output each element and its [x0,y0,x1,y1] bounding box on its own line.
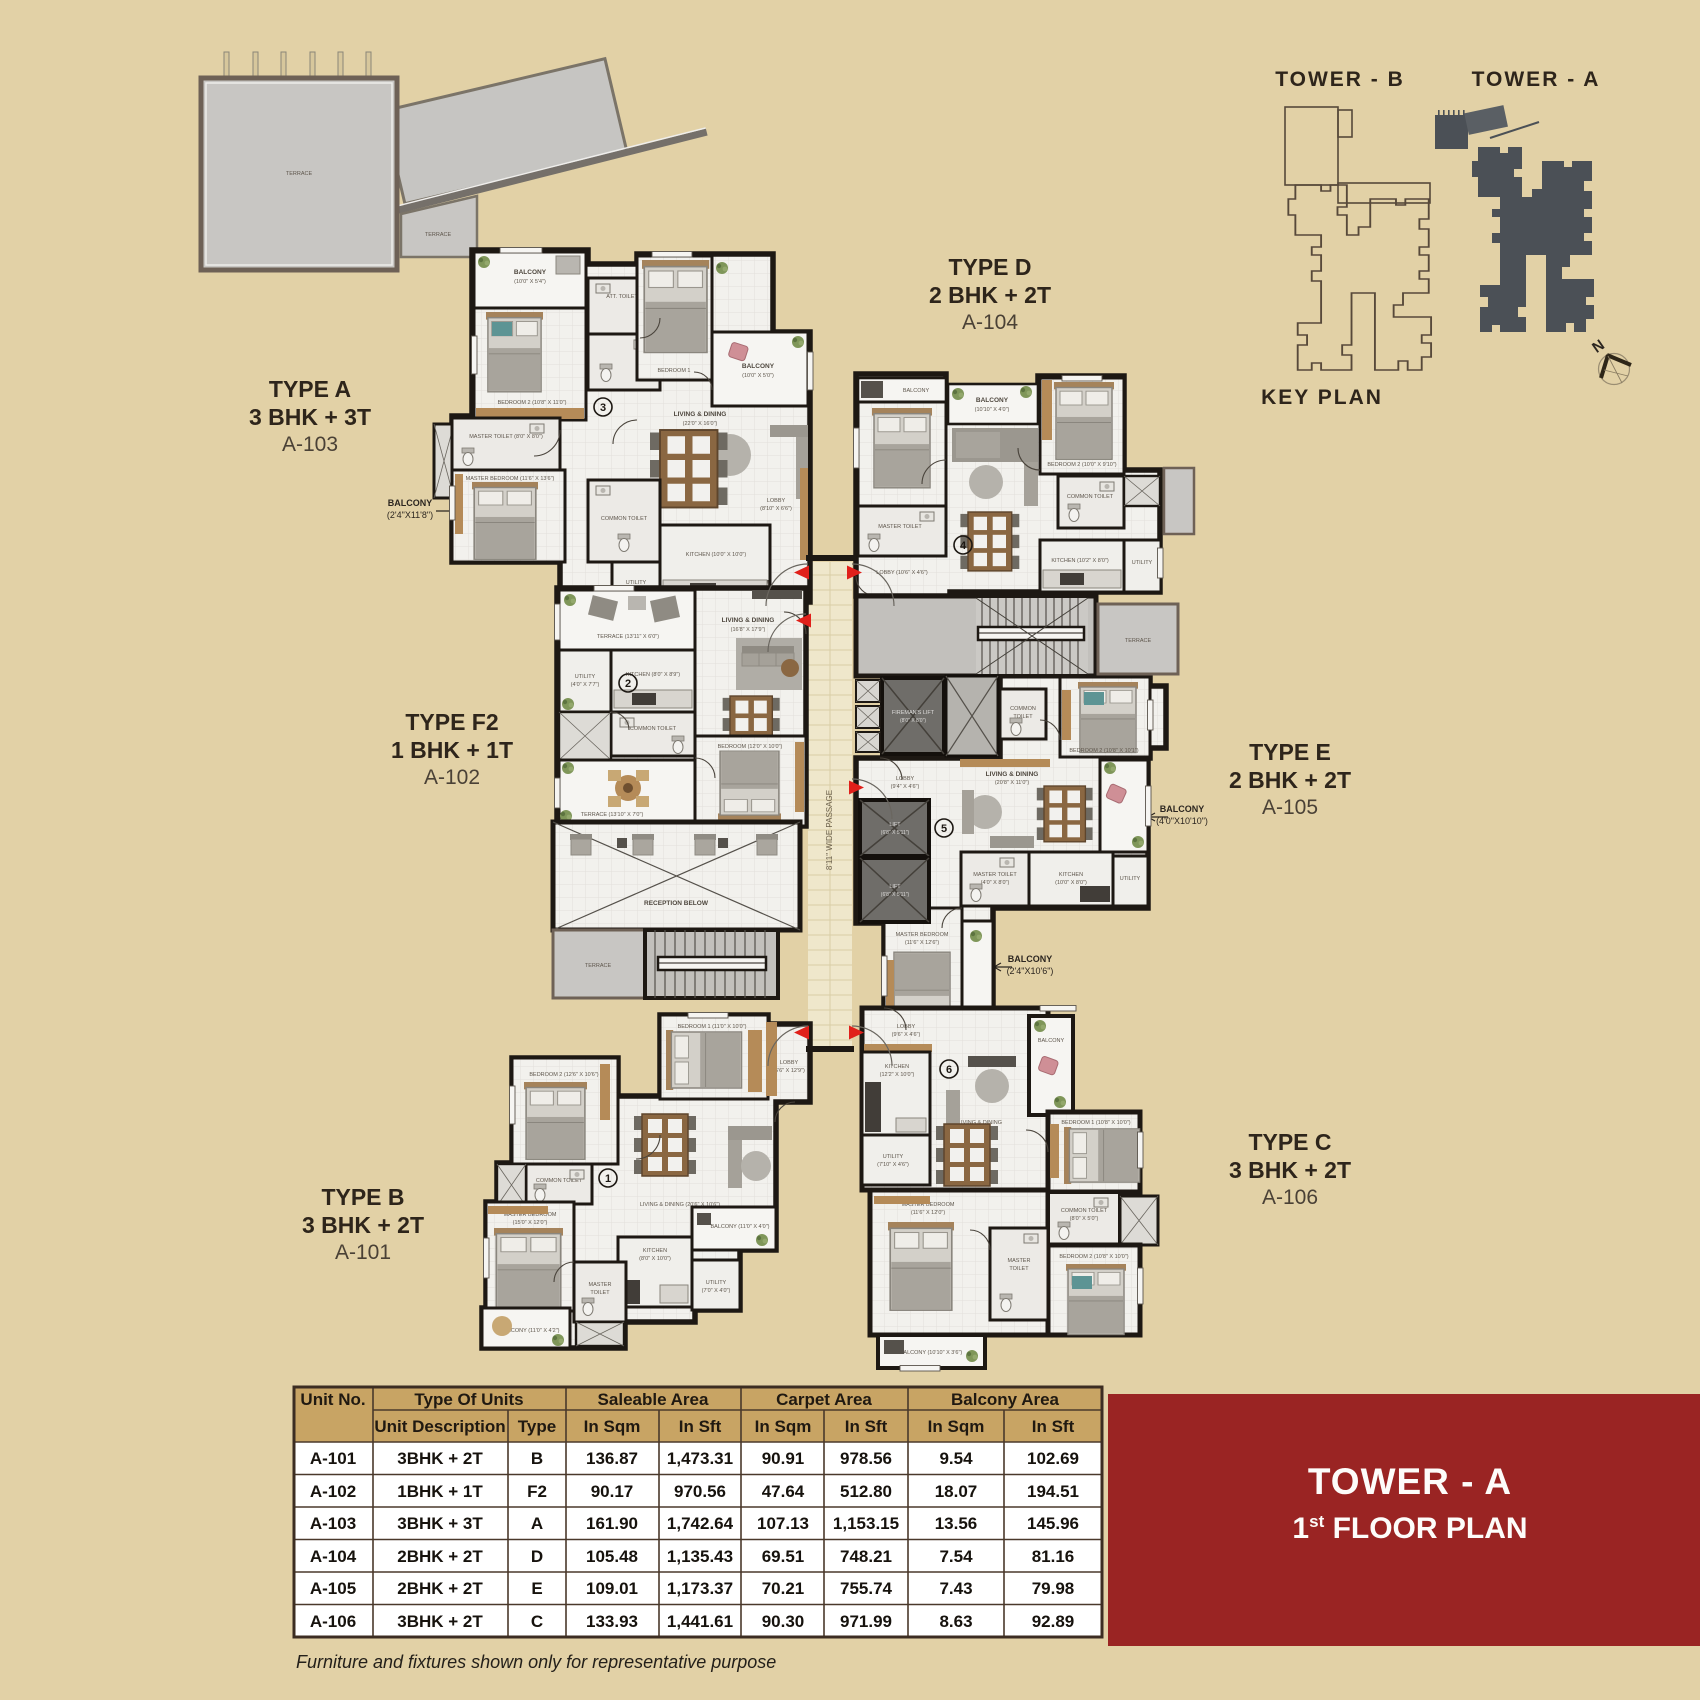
svg-text:COMMON: COMMON [1010,706,1036,712]
svg-text:TOILET: TOILET [590,1290,610,1296]
svg-text:LOBBY: LOBBY [896,776,915,782]
svg-text:1st FLOOR PLAN: 1st FLOOR PLAN [1292,1512,1527,1545]
svg-text:MASTER TOILET: MASTER TOILET [973,872,1017,878]
svg-text:RECEPTION BELOW: RECEPTION BELOW [644,900,709,907]
svg-text:LIVING & DINING: LIVING & DINING [722,617,775,624]
svg-text:KITCHEN: KITCHEN [643,1248,667,1254]
svg-text:5: 5 [941,823,947,835]
svg-text:B: B [531,1449,543,1468]
svg-text:KITCHEN: KITCHEN [1059,872,1083,878]
svg-text:TYPE D: TYPE D [948,254,1031,280]
svg-text:1,153.15: 1,153.15 [833,1514,899,1533]
svg-text:1: 1 [605,1173,611,1185]
svg-text:755.74: 755.74 [840,1579,893,1598]
svg-text:MASTER TOILET (8'0" X 8'0"): MASTER TOILET (8'0" X 8'0") [469,434,543,440]
svg-text:LOBBY: LOBBY [780,1060,799,1066]
svg-text:8'11" WIDE PASSAGE: 8'11" WIDE PASSAGE [825,790,834,870]
svg-text:(12'2" X 10'0"): (12'2" X 10'0") [880,1072,915,1078]
svg-text:COMMON TOILET: COMMON TOILET [1067,494,1114,500]
svg-text:A-106: A-106 [310,1612,356,1631]
svg-text:A-105: A-105 [1262,796,1318,819]
svg-text:(11'6" X 12'0"): (11'6" X 12'0") [911,1210,946,1216]
svg-text:81.16: 81.16 [1032,1547,1075,1566]
svg-text:133.93: 133.93 [586,1612,638,1631]
svg-text:In Sft: In Sft [845,1417,888,1436]
svg-text:978.56: 978.56 [840,1449,892,1468]
svg-text:BEDROOM 2 (10'8" X 10'0"): BEDROOM 2 (10'8" X 10'0") [1059,1254,1128,1260]
svg-text:BALCONY: BALCONY [742,363,775,370]
svg-text:1 BHK + 1T: 1 BHK + 1T [391,737,513,763]
svg-text:TERRACE: TERRACE [425,232,452,238]
svg-text:18.07: 18.07 [935,1482,978,1501]
svg-text:Type: Type [518,1417,556,1436]
svg-text:A: A [531,1514,543,1533]
svg-text:BALCONY: BALCONY [903,388,930,394]
svg-text:109.01: 109.01 [586,1579,638,1598]
svg-text:4: 4 [960,540,967,552]
svg-text:(10'0" X 5'0"): (10'0" X 5'0") [742,373,774,379]
svg-text:1,135.43: 1,135.43 [667,1547,733,1566]
svg-text:9.54: 9.54 [939,1449,973,1468]
svg-text:KITCHEN (10'0" X 10'0"): KITCHEN (10'0" X 10'0") [686,552,747,558]
svg-text:KEY PLAN: KEY PLAN [1261,386,1383,409]
svg-text:F2: F2 [527,1482,547,1501]
svg-text:In Sft: In Sft [679,1417,722,1436]
svg-text:194.51: 194.51 [1027,1482,1079,1501]
svg-text:79.98: 79.98 [1032,1579,1075,1598]
svg-text:Unit Description: Unit Description [374,1417,505,1436]
svg-text:(6'8" X 5'11"): (6'8" X 5'11") [881,830,910,836]
svg-text:(20'8" X 11'0"): (20'8" X 11'0") [995,780,1030,786]
svg-text:A-103: A-103 [310,1514,356,1533]
svg-text:A-104: A-104 [962,311,1018,334]
svg-text:A-102: A-102 [310,1482,356,1501]
svg-text:(11'6" X 12'6"): (11'6" X 12'6") [905,940,940,946]
svg-text:A-103: A-103 [282,433,338,456]
svg-text:(2'4"X11'8"): (2'4"X11'8") [387,510,433,520]
svg-text:TERRACE (13'11" X 6'0"): TERRACE (13'11" X 6'0") [597,634,659,640]
svg-text:In Sqm: In Sqm [584,1417,641,1436]
svg-text:TYPE C: TYPE C [1248,1129,1331,1155]
svg-text:BEDROOM 2 (10'0" X 9'10"): BEDROOM 2 (10'0" X 9'10") [1047,462,1116,468]
svg-text:(8'0" X 5'0"): (8'0" X 5'0") [1070,1216,1099,1222]
svg-text:E: E [531,1579,542,1598]
svg-text:971.99: 971.99 [840,1612,892,1631]
svg-text:8.63: 8.63 [939,1612,972,1631]
svg-text:(22'0" X 16'0"): (22'0" X 16'0") [683,421,718,427]
svg-text:3BHK + 2T: 3BHK + 2T [397,1612,483,1631]
svg-text:BEDROOM 2 (12'6" X 10'6"): BEDROOM 2 (12'6" X 10'6") [529,1072,598,1078]
svg-text:A-101: A-101 [335,1241,391,1264]
svg-text:(7'10" X 4'6"): (7'10" X 4'6") [877,1162,909,1168]
svg-text:BEDROOM (12'0" X 10'0"): BEDROOM (12'0" X 10'0") [718,744,783,750]
svg-text:MASTER TOILET: MASTER TOILET [878,524,922,530]
svg-text:KITCHEN (10'2" X 8'0"): KITCHEN (10'2" X 8'0") [1051,558,1109,564]
svg-text:In Sft: In Sft [1032,1417,1075,1436]
svg-text:BALCONY: BALCONY [1008,954,1053,964]
svg-text:(9'4" X 4'6"): (9'4" X 4'6") [891,784,920,790]
svg-text:90.30: 90.30 [762,1612,805,1631]
svg-text:107.13: 107.13 [757,1514,809,1533]
svg-text:UTILITY: UTILITY [1132,560,1153,566]
svg-text:MASTER: MASTER [589,1282,612,1288]
svg-text:92.89: 92.89 [1032,1612,1075,1631]
svg-text:1BHK + 1T: 1BHK + 1T [397,1482,483,1501]
svg-text:TYPE F2: TYPE F2 [405,709,498,735]
svg-text:(4'0" X 8'0"): (4'0" X 8'0") [981,880,1010,886]
svg-text:In Sqm: In Sqm [928,1417,985,1436]
svg-text:13.56: 13.56 [935,1514,978,1533]
svg-text:(15'0" X 12'0"): (15'0" X 12'0") [513,1220,548,1226]
svg-text:105.48: 105.48 [586,1547,638,1566]
svg-text:Type Of Units: Type Of Units [414,1390,523,1409]
svg-text:BEDROOM 2 (10'8" X 11'0"): BEDROOM 2 (10'8" X 11'0") [498,400,567,406]
svg-text:A-106: A-106 [1262,1186,1318,1209]
svg-text:UTILITY: UTILITY [575,674,596,680]
svg-text:7.43: 7.43 [939,1579,972,1598]
svg-text:(8'0" X 8'0"): (8'0" X 8'0") [900,718,926,724]
svg-text:7.54: 7.54 [939,1547,973,1566]
svg-text:2BHK + 2T: 2BHK + 2T [397,1547,483,1566]
svg-text:2BHK + 2T: 2BHK + 2T [397,1579,483,1598]
svg-text:3 BHK + 3T: 3 BHK + 3T [249,404,371,430]
svg-text:970.56: 970.56 [674,1482,726,1501]
svg-text:(9'6" X 4'6"): (9'6" X 4'6") [892,1032,921,1038]
svg-text:UTILITY: UTILITY [706,1280,727,1286]
svg-text:COMMON TOILET: COMMON TOILET [630,726,677,732]
svg-text:(4'0" X 7'7"): (4'0" X 7'7") [571,682,600,688]
svg-text:3 BHK + 2T: 3 BHK + 2T [1229,1157,1351,1183]
svg-text:MASTER BEDROOM (11'6" X 13'6"): MASTER BEDROOM (11'6" X 13'6") [466,476,555,482]
svg-text:6: 6 [946,1064,952,1076]
svg-text:Furniture and fixtures shown o: Furniture and fixtures shown only for re… [296,1652,776,1672]
svg-text:TOWER - A: TOWER - A [1472,68,1601,91]
svg-text:LIVING & DINING: LIVING & DINING [986,771,1039,778]
svg-text:BEDROOM 1: BEDROOM 1 [657,368,690,374]
svg-text:D: D [531,1547,543,1566]
svg-text:1,742.64: 1,742.64 [667,1514,734,1533]
svg-text:TOILET: TOILET [1009,1266,1029,1272]
svg-text:90.91: 90.91 [762,1449,805,1468]
svg-text:BALCONY: BALCONY [1160,804,1205,814]
svg-text:TYPE B: TYPE B [321,1184,404,1210]
svg-text:Balcony Area: Balcony Area [951,1390,1060,1409]
svg-text:LIFT: LIFT [889,884,901,890]
svg-text:BALCONY: BALCONY [388,498,433,508]
svg-text:TERRACE: TERRACE [286,171,313,177]
svg-text:BALCONY: BALCONY [514,269,547,276]
svg-text:(8'0" X 10'0"): (8'0" X 10'0") [639,1256,671,1262]
svg-text:COMMON TOILET: COMMON TOILET [601,516,648,522]
svg-text:3BHK + 2T: 3BHK + 2T [397,1449,483,1468]
svg-text:70.21: 70.21 [762,1579,805,1598]
svg-text:3BHK + 3T: 3BHK + 3T [397,1514,483,1533]
svg-text:TERRACE: TERRACE [1125,638,1152,644]
svg-text:A-102: A-102 [424,766,480,789]
svg-text:(6'8" X 5'11"): (6'8" X 5'11") [881,892,910,898]
svg-text:136.87: 136.87 [586,1449,638,1468]
svg-text:Saleable Area: Saleable Area [598,1390,709,1409]
svg-text:(10'0" X 5'4"): (10'0" X 5'4") [514,279,546,285]
svg-text:LIFT: LIFT [889,822,901,828]
svg-text:(8'10" X 6'6"): (8'10" X 6'6") [760,506,792,512]
svg-text:102.69: 102.69 [1027,1449,1079,1468]
svg-text:BEDROOM 1 (10'8" X 10'0"): BEDROOM 1 (10'8" X 10'0") [1061,1120,1130,1126]
svg-text:LOBBY (10'6" X 4'6"): LOBBY (10'6" X 4'6") [876,570,928,576]
svg-text:TERRACE: TERRACE [585,963,612,969]
svg-text:1,173.37: 1,173.37 [667,1579,733,1598]
svg-text:512.80: 512.80 [840,1482,892,1501]
svg-text:A-101: A-101 [310,1449,356,1468]
svg-text:BALCONY (11'0" X 4'0"): BALCONY (11'0" X 4'0") [711,1224,770,1230]
svg-text:UTILITY: UTILITY [883,1154,904,1160]
svg-text:TERRACE (13'10" X 7'0"): TERRACE (13'10" X 7'0") [581,812,644,818]
svg-text:69.51: 69.51 [762,1547,805,1566]
svg-text:748.21: 748.21 [840,1547,892,1566]
svg-text:145.96: 145.96 [1027,1514,1079,1533]
svg-text:47.64: 47.64 [762,1482,805,1501]
svg-text:161.90: 161.90 [586,1514,638,1533]
svg-text:COMMON TOILET: COMMON TOILET [1061,1208,1108,1214]
svg-text:BALCONY (10'10" X 3'6"): BALCONY (10'10" X 3'6") [900,1350,963,1356]
svg-text:(7'0" X 4'0"): (7'0" X 4'0") [702,1288,731,1294]
svg-text:In Sqm: In Sqm [755,1417,812,1436]
svg-text:C: C [531,1612,543,1631]
svg-text:(2'4"X10'6"): (2'4"X10'6") [1007,966,1054,976]
svg-text:A-105: A-105 [310,1579,356,1598]
svg-text:A-104: A-104 [310,1547,357,1566]
svg-text:TOWER - B: TOWER - B [1275,68,1405,91]
svg-text:FIREMAN'S LIFT: FIREMAN'S LIFT [892,710,935,716]
svg-text:BALCONY: BALCONY [1038,1038,1065,1044]
svg-text:2: 2 [625,678,631,690]
svg-text:(10'0" X 8'0"): (10'0" X 8'0") [1055,880,1087,886]
svg-text:Carpet Area: Carpet Area [776,1390,872,1409]
svg-text:MASTER BEDROOM: MASTER BEDROOM [896,932,949,938]
svg-text:TYPE E: TYPE E [1249,739,1331,765]
svg-text:Unit No.: Unit No. [300,1390,365,1409]
svg-text:BEDROOM 2 (10'8" X 10'1"): BEDROOM 2 (10'8" X 10'1") [1069,748,1138,754]
svg-text:BALCONY: BALCONY [976,397,1009,404]
svg-text:UTILITY: UTILITY [1120,876,1141,882]
svg-text:ATT. TOILET: ATT. TOILET [606,294,638,300]
svg-text:BEDROOM 1 (11'0" X 10'0"): BEDROOM 1 (11'0" X 10'0") [678,1024,747,1030]
svg-text:TYPE A: TYPE A [269,376,351,402]
svg-text:(10'10" X 4'0"): (10'10" X 4'0") [975,407,1010,413]
svg-text:90.17: 90.17 [591,1482,634,1501]
svg-text:(6'6" X 12'9"): (6'6" X 12'9") [773,1068,805,1074]
svg-text:2 BHK + 2T: 2 BHK + 2T [929,282,1051,308]
svg-text:1,441.61: 1,441.61 [667,1612,733,1631]
svg-text:(16'8" X 17'9"): (16'8" X 17'9") [731,627,766,633]
svg-text:1,473.31: 1,473.31 [667,1449,733,1468]
svg-text:TOWER - A: TOWER - A [1308,1461,1512,1502]
svg-text:2 BHK + 2T: 2 BHK + 2T [1229,767,1351,793]
svg-text:3: 3 [600,402,606,414]
svg-text:LOBBY: LOBBY [767,498,786,504]
svg-text:MASTER: MASTER [1008,1258,1031,1264]
svg-text:3 BHK + 2T: 3 BHK + 2T [302,1212,424,1238]
svg-text:KITCHEN: KITCHEN [885,1064,909,1070]
svg-text:LIVING & DINING: LIVING & DINING [674,411,727,418]
